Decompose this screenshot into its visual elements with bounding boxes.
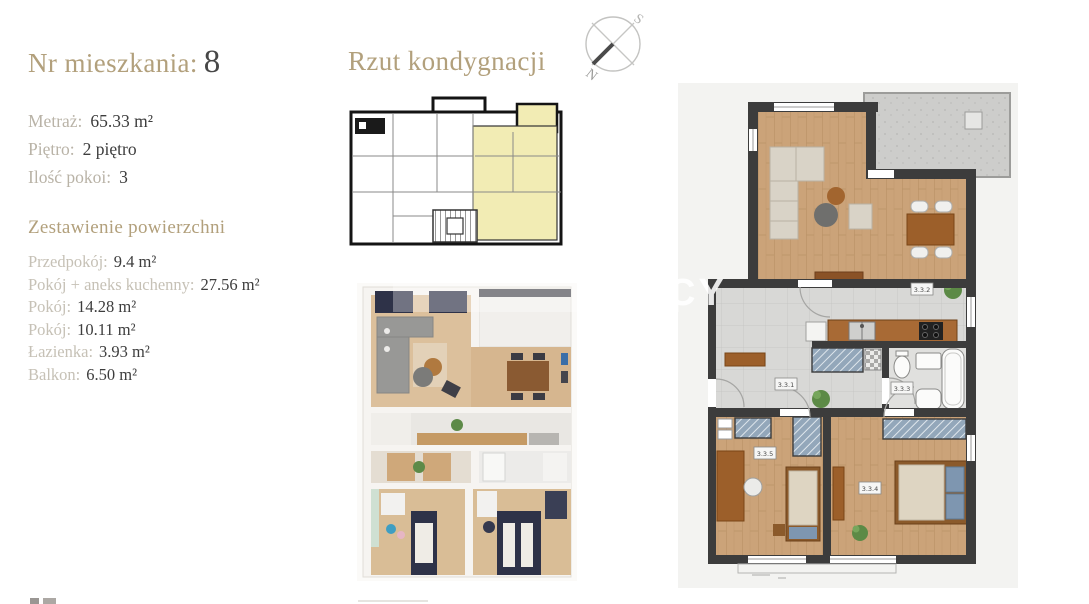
render-pillow: [384, 328, 390, 334]
render-duvet: [503, 523, 515, 567]
render-dining-table: [507, 361, 549, 391]
detail-value: 65.33 m²: [90, 111, 153, 131]
render-chair: [533, 353, 545, 360]
area-value: 10.11 m²: [77, 320, 135, 339]
page-title: Nr mieszkania:8: [28, 44, 358, 81]
area-value: 27.56 m²: [201, 275, 260, 294]
wardrobe: [883, 419, 966, 439]
area-label: Łazienka:: [28, 342, 93, 361]
render-fixture: [543, 453, 567, 481]
terrace: [864, 93, 1010, 177]
render-duvet: [521, 523, 533, 567]
render-hall-mat: [387, 453, 415, 481]
apartment-number: 8: [204, 44, 221, 80]
area-value: 6.50 m²: [86, 365, 137, 384]
areas-heading: Zestawienie powierzchni: [28, 217, 358, 239]
shower-tray: [916, 389, 941, 409]
render-plant: [413, 461, 425, 473]
room-label-bedroom-small: 3.3.5: [757, 450, 774, 458]
render-wall: [371, 445, 571, 451]
detail-label: Metraż:: [28, 111, 82, 131]
bath-sink: [916, 353, 941, 369]
apartment-number-label: Nr mieszkania:: [28, 48, 198, 78]
render-appliance: [529, 433, 559, 445]
render-curtain: [375, 291, 413, 313]
render-wardrobe: [545, 491, 567, 519]
render-hall-mat: [423, 453, 451, 481]
room-label-living: 3.3.2: [914, 286, 931, 294]
detail-row: Piętro:2 piętro: [28, 135, 358, 163]
detail-row: Metraż:65.33 m²: [28, 107, 358, 135]
render-plant: [451, 419, 463, 431]
render-desk: [381, 493, 405, 515]
area-row: Łazienka:3.93 m²: [28, 341, 358, 364]
toilet: [894, 356, 910, 378]
area-label: Pokój + aneks kuchenny:: [28, 275, 195, 294]
area-row: Pokój:10.11 m²: [28, 319, 358, 342]
cutoff-logo-artifact: [43, 598, 56, 604]
apartment-details: Metraż:65.33 m² Piętro:2 piętro Ilość po…: [28, 107, 358, 191]
detail-value: 2 piętro: [83, 139, 137, 159]
wardrobe: [735, 418, 771, 438]
compass-needle: [593, 44, 613, 64]
apartment-3d-render: [357, 283, 577, 581]
ottoman: [849, 204, 872, 229]
fridge: [806, 322, 826, 341]
render-sofa-chaise: [377, 317, 433, 337]
highlighted-unit: [473, 126, 557, 240]
render-bathtub: [483, 453, 505, 481]
apartment-floor-plan: 3.3.1 3.3.2 3.3.3 3.3.4 3.3.5: [678, 83, 1032, 604]
render-wall-art: [561, 353, 568, 365]
render-duvet: [415, 523, 433, 563]
render-chair: [511, 353, 523, 360]
kitchen: [806, 320, 957, 342]
area-row: Przedpokój:9.4 m²: [28, 251, 358, 274]
floor-section-heading: Rzut kondygnacji: [348, 46, 546, 77]
render-neighbor-curtain: [479, 289, 571, 297]
area-row: Pokój + aneks kuchenny:27.56 m²: [28, 274, 358, 297]
render-counter: [417, 433, 527, 445]
render-chair: [511, 393, 523, 400]
render-wall: [471, 289, 479, 347]
hall-wardrobe: [812, 348, 863, 372]
areas-list: Przedpokój:9.4 m² Pokój + aneks kuchenny…: [28, 251, 358, 386]
page: Nr mieszkania:8 Metraż:65.33 m² Piętro:2…: [0, 0, 1089, 604]
area-label: Pokój:: [28, 297, 71, 316]
render-decor: [386, 524, 396, 534]
detail-row: Ilość pokoi:3: [28, 163, 358, 191]
area-label: Balkon:: [28, 365, 80, 384]
cutoff-line-artifact: [358, 600, 428, 602]
dining-table: [907, 214, 954, 245]
area-value: 9.4 m²: [114, 252, 157, 271]
desk: [717, 451, 744, 521]
washer: [865, 349, 881, 370]
render-coffee-table: [413, 367, 433, 387]
coffee-table: [814, 203, 838, 227]
render-pillow: [384, 346, 390, 352]
dining-chair: [911, 247, 928, 258]
render-desk: [477, 491, 497, 517]
dining-chair: [935, 247, 952, 258]
render-wall: [465, 489, 473, 575]
area-value: 14.28 m²: [77, 297, 136, 316]
compass-icon: S N: [582, 6, 646, 82]
cutoff-logo-artifact: [30, 598, 39, 604]
render-wall: [371, 483, 571, 489]
render-chair: [483, 521, 495, 533]
render-curtain: [429, 291, 467, 313]
hall-bench: [725, 353, 765, 366]
area-row: Balkon:6.50 m²: [28, 364, 358, 387]
mini-floor-plan: [345, 92, 567, 254]
area-value: 3.93 m²: [99, 342, 150, 361]
desk-chair: [744, 478, 762, 496]
desk: [833, 467, 844, 520]
dining-chair: [911, 201, 928, 212]
mini-plan-block-window: [359, 122, 366, 129]
area-label: Przedpokój:: [28, 252, 108, 271]
render-decor: [397, 531, 405, 539]
detail-label: Ilość pokoi:: [28, 167, 111, 187]
dining-chair: [935, 201, 952, 212]
render-wall: [371, 407, 571, 413]
elevator: [447, 218, 463, 234]
detail-value: 3: [119, 167, 128, 187]
compass-north-label: N: [583, 66, 600, 82]
room-label-bathroom: 3.3.3: [894, 385, 911, 393]
room-label-bedroom-master: 3.3.4: [862, 485, 879, 493]
area-row: Pokój:14.28 m²: [28, 296, 358, 319]
render-chair: [533, 393, 545, 400]
wardrobe: [793, 417, 821, 456]
room-label-hall: 3.3.1: [778, 381, 795, 389]
render-accent-wall: [371, 489, 379, 547]
apartment-info-panel: Nr mieszkania:8 Metraż:65.33 m² Piętro:2…: [28, 44, 358, 386]
side-table: [827, 187, 845, 205]
nightstand: [773, 524, 785, 536]
render-cabinets: [371, 413, 411, 445]
cooktop: [919, 322, 943, 340]
area-label: Pokój:: [28, 320, 71, 339]
render-neighbor-room: [479, 289, 571, 347]
render-wall-art: [561, 371, 568, 383]
detail-label: Piętro:: [28, 139, 75, 159]
